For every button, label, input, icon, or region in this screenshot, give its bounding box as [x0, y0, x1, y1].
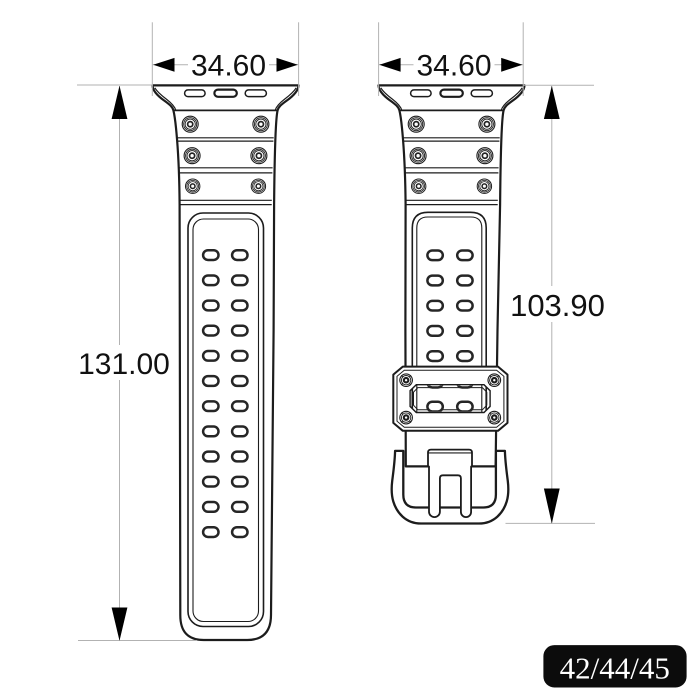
svg-text:131.00: 131.00: [78, 348, 170, 381]
svg-text:103.90: 103.90: [510, 288, 605, 323]
svg-text:42/44/45: 42/44/45: [560, 651, 670, 686]
svg-text:34.60: 34.60: [191, 50, 266, 83]
svg-text:34.60: 34.60: [416, 50, 491, 83]
